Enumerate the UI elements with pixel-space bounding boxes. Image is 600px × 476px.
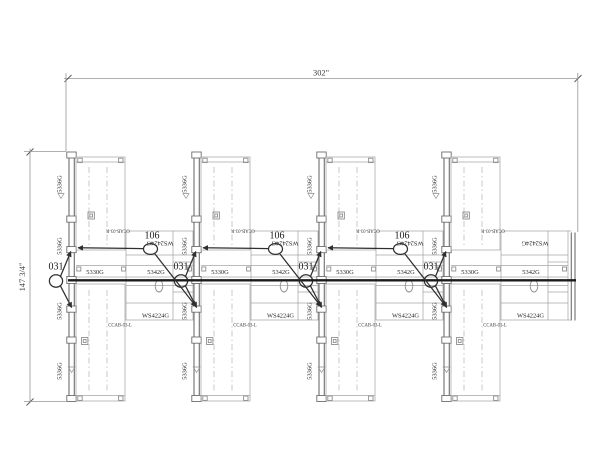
workstation-bay-1 xyxy=(49,152,194,402)
workstation-bay-3 xyxy=(299,152,444,402)
workstation-bay-2 xyxy=(174,152,319,402)
dimension-height-value: 147 3/4" xyxy=(18,263,27,292)
dimension-width: 302" xyxy=(64,68,582,232)
plan-canvas: 5336G 5336G 5336G 5336G 5330G 5342G xyxy=(0,0,600,476)
dimension-width-value: 302" xyxy=(313,68,329,77)
workstation-bay-4 xyxy=(424,152,569,402)
furniture-plan-drawing: 5336G 5336G 5336G 5336G 5330G 5342G xyxy=(0,0,600,476)
